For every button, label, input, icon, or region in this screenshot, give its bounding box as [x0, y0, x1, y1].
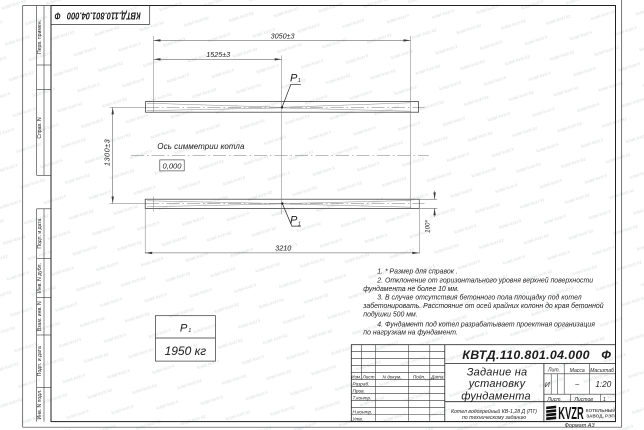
- svg-text:Н.контр.: Н.контр.: [353, 409, 373, 414]
- svg-text:1300±3: 1300±3: [103, 138, 112, 166]
- svg-text:забетонировать. Расстояние от: забетонировать. Расстояние от осей крайн…: [362, 302, 603, 310]
- svg-text:100*: 100*: [424, 220, 431, 233]
- svg-text:Подп. и дата: Подп. и дата: [37, 218, 43, 248]
- svg-text:0,000: 0,000: [162, 161, 182, 170]
- svg-text:Лист.: Лист.: [546, 397, 561, 403]
- svg-text:–: –: [574, 381, 579, 388]
- svg-text:Подп. и дата: Подп. и дата: [37, 346, 43, 376]
- svg-text:2. Отклонение от горизонтально: 2. Отклонение от горизонтального уровня …: [376, 277, 593, 285]
- svg-text:Изм.: Изм.: [351, 375, 361, 380]
- svg-text:P: P: [290, 214, 298, 226]
- svg-text:1: 1: [298, 78, 301, 84]
- svg-text:Листов: Листов: [573, 397, 593, 403]
- svg-text:по нагрузкам на фундамент.: по нагрузкам на фундамент.: [363, 329, 458, 337]
- svg-text:Задание на: Задание на: [467, 367, 528, 379]
- svg-text:Инв. N дубл.: Инв. N дубл.: [37, 263, 43, 293]
- svg-text:3. В случае отсутствия бетонно: 3. В случае отсутствия бетонного пола пл…: [377, 294, 581, 302]
- svg-text:установку: установку: [468, 378, 527, 390]
- svg-text:ЗАВОД, РЭП: ЗАВОД, РЭП: [586, 413, 614, 418]
- svg-text:1950 кг: 1950 кг: [165, 344, 207, 358]
- svg-text:Пров.: Пров.: [353, 389, 365, 394]
- svg-text:1: 1: [298, 222, 301, 228]
- svg-text:Масштаб: Масштаб: [590, 368, 615, 374]
- svg-text:4. Фундамент под котел разраба: 4. Фундамент под котел разрабатывает про…: [377, 320, 595, 328]
- svg-text:Подп.: Подп.: [413, 375, 425, 380]
- svg-text:1. * Размер для справок .: 1. * Размер для справок .: [377, 268, 458, 276]
- svg-text:1:20: 1:20: [595, 380, 611, 389]
- svg-text:Лист: Лист: [361, 375, 374, 380]
- svg-text:Формат А3: Формат А3: [564, 423, 595, 429]
- svg-text:3210: 3210: [275, 244, 291, 253]
- svg-text:Разраб.: Разраб.: [353, 382, 370, 387]
- svg-text:по техническому заданию: по техническому заданию: [462, 415, 526, 421]
- svg-text:P: P: [180, 323, 188, 335]
- svg-text:Взам. инв. N: Взам. инв. N: [37, 301, 43, 331]
- svg-text:N докум.: N докум.: [383, 375, 402, 380]
- svg-text:Справ. N: Справ. N: [37, 117, 43, 139]
- svg-text:Инв. N подл.: Инв. N подл.: [37, 390, 43, 420]
- svg-text:1: 1: [188, 328, 191, 334]
- svg-text:1: 1: [603, 397, 606, 403]
- svg-text:КВТД.110.801.04.000 Ф: КВТД.110.801.04.000 Ф: [55, 9, 141, 20]
- svg-text:Ось симметрии котла: Ось симметрии котла: [157, 142, 245, 151]
- svg-text:Лит.: Лит.: [547, 368, 560, 374]
- svg-text:КВТД.110.801.04.000 Ф: КВТД.110.801.04.000 Ф: [462, 348, 611, 362]
- svg-text:Котел водогрейный КВ-1,28 Д (: Котел водогрейный КВ-1,28 Д (ПТ): [451, 408, 537, 415]
- svg-text:подушки 500 мм.: подушки 500 мм.: [363, 311, 417, 319]
- svg-text:Перв. примен.: Перв. примен.: [37, 20, 43, 54]
- svg-text:фундамента не более 10 мм.: фундамента не более 10 мм.: [363, 285, 459, 293]
- svg-text:Масса: Масса: [570, 368, 585, 374]
- svg-text:1525±3: 1525±3: [206, 50, 230, 59]
- svg-text:Утв.: Утв.: [353, 416, 364, 421]
- svg-text:Дата: Дата: [430, 375, 444, 380]
- svg-text:P: P: [290, 73, 298, 85]
- svg-text:КОТЕЛЬНЫЙ: КОТЕЛЬНЫЙ: [586, 406, 616, 413]
- svg-text:Т.контр.: Т.контр.: [353, 396, 372, 401]
- svg-text:фундамента: фундамента: [461, 391, 531, 403]
- svg-text:KVZR: KVZR: [558, 403, 584, 423]
- svg-text:3050±3: 3050±3: [271, 31, 295, 40]
